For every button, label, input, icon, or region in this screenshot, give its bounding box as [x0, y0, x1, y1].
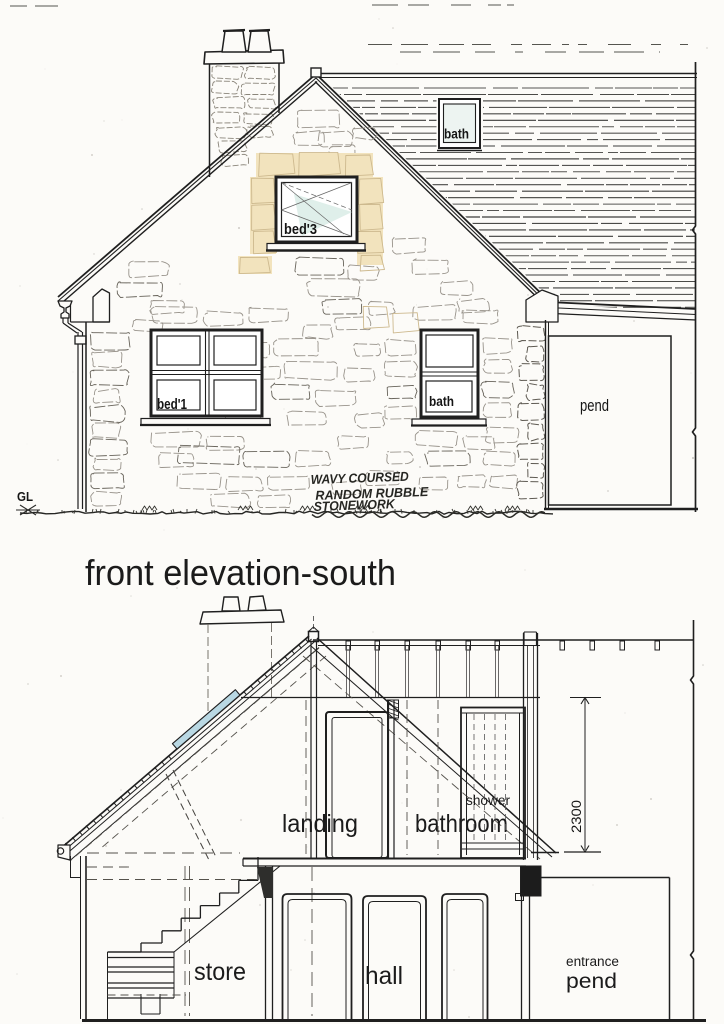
svg-text:STONEWORK: STONEWORK [313, 496, 396, 514]
svg-text:bed'3: bed'3 [284, 221, 317, 238]
svg-text:pend: pend [580, 396, 609, 415]
svg-text:bath: bath [429, 393, 454, 409]
svg-text:hall: hall [365, 962, 403, 990]
svg-text:bath: bath [444, 127, 469, 142]
svg-text:front elevation-south: front elevation-south [85, 552, 396, 593]
svg-text:GL: GL [17, 489, 33, 504]
svg-text:entrance: entrance [566, 954, 619, 969]
svg-text:shower: shower [466, 792, 510, 808]
svg-text:2300: 2300 [569, 800, 584, 833]
svg-text:pend: pend [566, 970, 617, 993]
svg-text:bed'1: bed'1 [157, 396, 187, 413]
svg-text:store: store [194, 958, 246, 986]
svg-text:landing: landing [282, 810, 358, 838]
